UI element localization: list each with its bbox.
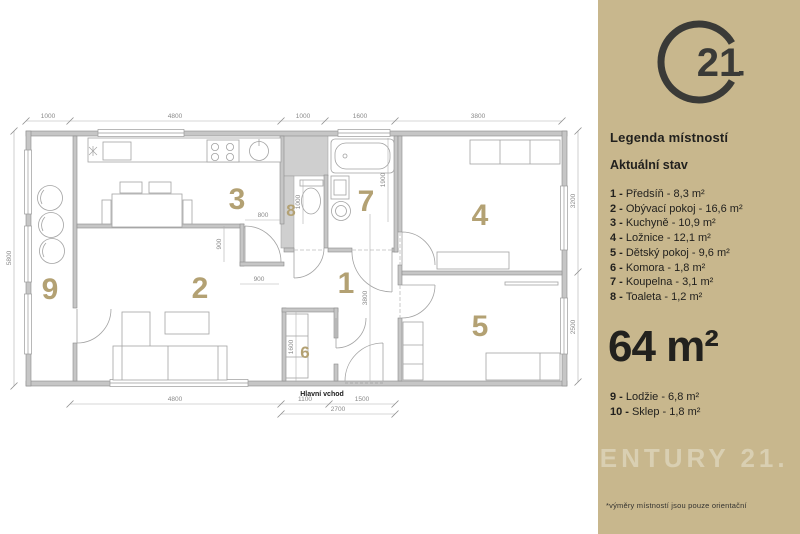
century21-logo: 21 <box>651 12 747 117</box>
bathroom-door <box>352 252 392 292</box>
bedroom-door <box>402 232 435 265</box>
dim-top-loggia: 1000 <box>41 113 56 120</box>
loggia-door <box>77 309 111 343</box>
kids-room-door <box>402 285 435 318</box>
entrance-door <box>345 343 383 381</box>
storage-door <box>336 318 366 348</box>
kitchen-door <box>245 226 281 262</box>
legend-row-8: 8 -Toaleta - 1,2 m² <box>610 290 743 305</box>
legend-title: Legenda místností <box>610 130 728 145</box>
legend-sidebar: 21 Legenda místností Aktuální stav 1 -Př… <box>598 0 800 534</box>
kitchen-furniture <box>88 138 281 227</box>
dim-right-2500: 2500 <box>570 319 577 334</box>
dim-bottom-living: 4800 <box>168 396 183 403</box>
legend-row-4: 4 -Ložnice - 12,1 m² <box>610 231 743 246</box>
dim-bottom-2700: 2700 <box>331 406 346 413</box>
wc-door <box>294 248 324 278</box>
room-number-living: 2 <box>192 272 209 305</box>
total-area: 64 m² <box>608 322 718 372</box>
floorplan-svg: 1000 4800 1000 1600 3800 4800 1100 1500 … <box>0 0 598 534</box>
dim-wc-depth: 1000 <box>295 194 302 209</box>
legend-row-2: 2 -Obývací pokoj - 16,6 m² <box>610 202 743 217</box>
entrance-label: Hlavní vchod <box>300 391 344 398</box>
legend-row-9: 9 -Lodžie - 6,8 m² <box>610 390 700 405</box>
bedroom-furniture <box>437 140 560 269</box>
legend-row-6: 6 -Komora - 1,8 m² <box>610 261 743 276</box>
room-number-hall: 1 <box>338 267 355 300</box>
legend-row-3: 3 -Kuchyně - 10,9 m² <box>610 216 743 231</box>
room-number-kitchen: 3 <box>229 183 246 216</box>
dim-top-kitchen: 4800 <box>168 113 183 120</box>
dim-hall-depth: 3800 <box>362 290 369 305</box>
dim-right-3200: 3200 <box>570 193 577 208</box>
floorplan-drawing: 1000 4800 1000 1600 3800 4800 1100 1500 … <box>0 0 598 534</box>
disclaimer-footnote: *výměry místností jsou pouze orientační <box>606 501 747 510</box>
living-furniture <box>113 312 227 380</box>
legend-row-1: 1 -Předsíň - 8,3 m² <box>610 187 743 202</box>
dim-bottom-1500: 1500 <box>355 396 370 403</box>
century21-watermark: CENTURY 21. <box>598 443 789 474</box>
dim-top-bedroom: 3800 <box>471 113 486 120</box>
room-legend-list: 1 -Předsíň - 8,3 m² 2 -Obývací pokoj - 1… <box>610 187 743 305</box>
room-number-storage: 6 <box>300 343 309 362</box>
logo-trademark-dot <box>739 71 744 76</box>
legend-row-10: 10 -Sklep - 1,8 m² <box>610 405 700 420</box>
room-number-bath: 7 <box>358 185 375 218</box>
status-title: Aktuální stav <box>610 158 688 172</box>
room-number-kids: 5 <box>472 310 489 343</box>
floorplan-page: { "sidebar": { "bg_color": "#c8b78d", "l… <box>0 0 800 534</box>
dim-storage-depth: 1600 <box>288 339 295 354</box>
dim-top-bath: 1600 <box>353 113 368 120</box>
loggia-chairs <box>38 186 65 264</box>
dim-step: 900 <box>216 238 223 249</box>
dim-top-wc: 1000 <box>296 113 311 120</box>
dim-bath-depth: 1900 <box>380 172 387 187</box>
dim-left-5800: 5800 <box>6 250 13 265</box>
dim-kitchen-door: 800 <box>258 212 269 219</box>
room-number-bedroom: 4 <box>472 199 489 232</box>
dim-passage: 900 <box>254 276 265 283</box>
room-number-loggia: 9 <box>42 273 59 306</box>
extra-room-list: 9 -Lodžie - 6,8 m² 10 -Sklep - 1,8 m² <box>610 390 700 420</box>
wc-fixtures <box>300 180 323 214</box>
legend-row-5: 5 -Dětský pokoj - 9,6 m² <box>610 246 743 261</box>
room-number-wc: 8 <box>286 201 295 220</box>
logo-number: 21 <box>697 41 742 85</box>
legend-row-7: 7 -Koupelna - 3,1 m² <box>610 275 743 290</box>
